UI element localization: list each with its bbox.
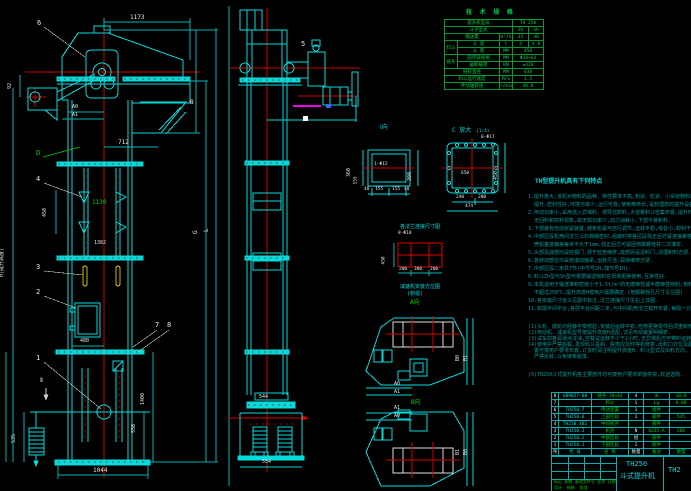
note-line: 8.料斗Zh型与Sh型可根据输送物料在现场更换使用,互换性好. [528,273,691,280]
bom-row: 4TH250.4B1中间机壳部件 [552,421,691,428]
bom-cell-code: GB9027-88 [559,393,592,400]
reducer [308,52,325,86]
dim-boot-554: 554 [262,460,271,465]
dim-450: 450 [43,208,48,217]
spec-cell: m³/h [500,34,513,41]
spec-cell: 传动轴转速 [445,83,500,90]
note-line: 2.传动功率小,采用流入式喂料、诱导式卸料,大容量料斗密集布置,提升时几乎 [528,209,691,216]
bom-cell-qty: 1 [629,414,644,421]
note-line: 严禁反转,以免链条脱落. [528,353,691,360]
detail-c-label: C 放大 [452,128,471,134]
bom-row: 2TH250.2中部区段组部件 [552,435,691,442]
note-line: 1.提升量大,该机对物料的品种、特性要求不高,粉状、粒状、小块状物料均可 [528,193,691,200]
bom-cell-wt: 206 [670,428,691,435]
bom-cell-qty: 1 [629,407,644,414]
dim-1382: 1382 [94,241,106,246]
bom-cell-name: 中间机壳 [592,421,629,428]
flange-i-300: 300 [408,172,413,181]
note-line: 10.各安装尺寸含义见图中标注,法兰连接尺寸见右上详图. [528,297,691,304]
plan2-b1: B1 [456,449,461,455]
reducer-plan [410,359,427,376]
bom-table: 8GB9027-88链条 18×644米10.8 7料斗1Lg0.08 6TH2… [551,392,691,456]
spec-table: 提升机型号TH 250 斗子型式ZhSh 输送量m³/h3548 料斗斗 容l3… [444,19,544,90]
motor-plan [374,428,382,440]
part-label-8: 8 [167,322,171,329]
bom-row: 5TH250.6上部区段1部件535 [552,414,691,421]
flange-i-b1: 40 [364,188,369,193]
note-line: 7.中部区段二米共7节(中节号2H,端节号1H). [528,265,691,272]
flange-i-b2: 155 [375,188,383,193]
spec-cell: 提升机型号 [445,20,513,27]
bom-cell-qty: 4 [629,393,644,400]
tension-bracket [28,88,57,110]
dim-g: G [193,230,199,234]
spec-cell: 链轮直径 [445,69,500,76]
spec-cell: 链条 [445,55,458,69]
head-body-plan [393,322,453,347]
spec-cell: 料斗 [445,41,458,55]
plan2-a0: A0 [394,414,400,419]
drive-flange [352,72,358,106]
spec-cell: ≥320 [513,62,544,69]
front-view-structure [28,26,190,466]
bom-cell-note: Lg [644,400,670,407]
spec-cell: 3 [513,41,529,48]
bom-header-code: 代 号 [559,449,592,456]
side-view-accents [293,104,331,121]
title-block: 标记 处数 更改文件号 签字 日期 设计 校核 批准 TH250 斗式提升机 T… [551,456,691,491]
base-plate [55,460,150,465]
bom-row: 8GB9027-88链条 18×644米10.8 [552,393,691,400]
spec-cell: 斗子型式 [445,27,513,34]
motor-plan [374,350,382,362]
bom-cell-wt [670,442,691,449]
bom-cell-wt [670,435,691,442]
bom-cell-code: TH250.1 [559,442,592,449]
part-label-1: 1 [36,355,40,362]
bom-cell-name: 中部区段 [592,435,629,442]
caption-reducer-position: 减速机安装方位图 [400,285,440,290]
note-line: 壳铅垂度偏差每米不大于1mm,找正后方可紧固地脚螺栓并二次灌浆. [528,241,691,248]
bom-cell-no: 4 [552,421,559,428]
section-ii-label: Ⅱ [40,378,43,384]
bom-cell-no: 6 [552,407,559,414]
bom-cell-code: TH250.7 [559,407,592,414]
dim-head-width: 1173 [130,15,144,21]
bom-header-note: 备注 [644,449,670,456]
bom-cell-code: TH250.2 [559,435,592,442]
head-pulley-housing [86,50,118,98]
bom-cell-name: 传动装置 [592,407,629,414]
bom-header-row: 序代 号名 称数量备注重量 [552,449,691,456]
spec-cell: 圆环链规格 [458,55,500,62]
bom-cell-note: Q235-A [644,428,670,435]
part-label-5: 5 [301,41,305,48]
bom-cell-wt: 10.8 [670,393,691,400]
flange-i-b3: 155 [392,188,400,193]
spec-cell: 35 [513,34,529,41]
spec-cell: MM [500,69,513,76]
detail-d-label: D [36,150,40,157]
titleblock-name: 斗式提升机 [620,473,655,480]
flange-c-450: 450 [494,171,499,180]
bom-cell-no: 1 [552,442,559,449]
dim-535: 535 [12,434,17,443]
view-i-label: Ⅰ向 [380,125,388,131]
side-view-structure [238,10,358,467]
dim-550: 550 [132,424,137,433]
spec-cell: 1.5 [513,76,544,83]
bom-cell-qty: 组 [629,435,644,442]
bom-header-name: 名 称 [592,449,629,456]
spec-cell: M/S [500,76,513,83]
head-vent [94,26,110,33]
head-vent-side [240,10,262,30]
part-label-3: 3 [36,264,40,271]
dim-a0: A0 [72,105,78,110]
spec-cell: 斗 距 [458,48,500,55]
bom-header-no: 序 [552,449,559,456]
cad-drawing-sheet: 1173 712 480 1044 A0 A1 92 450 1130 1382… [0,0,691,491]
bom-cell-name: 机壳 [592,428,629,435]
part-label-6: 6 [37,20,41,27]
front-view-bolt-marks [58,79,188,462]
detail-red-centerlines [362,138,503,198]
spec-row: 料斗运行速度M/S1.5 [445,76,544,83]
spec-row: 链轮直径MM630 [445,69,544,76]
bom-cell-note: 米 [644,393,670,400]
dim-h-label: H(提升高度) [0,248,5,277]
dim-a1: A1 [72,113,78,118]
flange-i-360: 360 [347,168,352,177]
dim-inlet-544: 544 [259,395,268,400]
grid-bolts-label: 8-Φ18 [398,232,412,237]
bom-cell-note: 部件 [644,442,670,449]
bom-cell-no: 3 [552,428,559,435]
flange-i-155: 155 [355,176,360,184]
bom-cell-qty: 1 [629,400,644,407]
bom-cell-no: 8 [552,393,559,400]
view-b-label: B向 [411,400,421,406]
plan-b1: B1 [464,355,469,361]
blue-marker [326,104,331,108]
titleblock-model: TH250 [626,461,647,468]
spec-row: 料斗斗 容l34.8 [445,41,544,48]
head-hood [62,33,183,77]
spec-table-title: 技 术 规 格 [466,10,515,16]
plan2-b0: B0 [464,449,469,455]
bom-row: 7料斗1Lg0.08 [552,400,691,407]
bom-cell-qty [629,421,644,428]
flange-c-474: 474 [465,205,473,210]
note-line: 不超过250℃,提升高度H按用户需要确定.(地脚螺栓孔尺寸见左图) [528,289,691,296]
bom-cell-wt: 0.08 [670,400,691,407]
caption-plan-note: (俯视) [407,292,423,297]
spec-cell: 料斗运行速度 [445,76,500,83]
note-line: 6.各转动部位均采用滚动轴承,运转灵活,润滑维修方便. [528,257,691,264]
signature-row-labels: 设计 校核 批准 [554,486,588,490]
note-line: 4.中部区段机壳间法兰以石棉绳密封,组装时将各区段找正后拧紧连接螺栓,机 [528,233,691,240]
spec-cell: r/min [500,83,513,90]
spec-cell: Sh [529,27,544,34]
plan-b0: B0 [456,355,461,361]
flange-c-bolts: 8-Φ17 [481,136,495,141]
grid-200b: 200 [430,268,438,273]
spec-cell: 630 [513,69,544,76]
bom-cell-name: 上部区段 [592,414,629,421]
bom-row: 3TH250.3机壳NQ235-A206 [552,428,691,435]
spec-row: 传动轴转速r/min48.0 [445,83,544,90]
plan-a1: A1 [394,390,400,395]
flange-c-240: 240 [456,196,464,201]
white-marker [303,116,308,121]
detail-c-scale: (1:4) [476,130,490,135]
note-line: 5.头部及底部均设检视门,便于检查维修,底部另设清料门,清理积料方便. [528,249,691,256]
revision-row-labels: 标记 处数 更改文件号 签字 日期 [554,480,616,484]
spec-cell: 4.8 [529,41,544,48]
spec-cell: 破断载荷 [458,62,500,69]
spec-row: 斗子型式ZhSh [445,27,544,34]
spec-cell: Φ18×64 [513,55,544,62]
bom-cell-no: 5 [552,414,559,421]
spec-cell: 斗 容 [458,41,500,48]
bom-cell-note: 组件 [644,407,670,414]
spec-cell: MM [500,55,513,62]
bom-header-wt: 重量 [670,449,691,456]
note-line: 11.如需中间平台,各层平台间距二米,与中间机壳法兰错开布置,每隔一只. [528,305,691,312]
bom-cell-name: 料斗 [592,400,629,407]
bom-cell-qty: N [629,428,644,435]
dim-b: B [190,100,194,106]
front-view-centerlines [25,26,200,478]
grid-200a: 200 [399,268,407,273]
view-a-label: A向 [410,300,420,306]
anchor-bolt-grid [398,243,442,267]
dim-chute: 712 [118,140,129,146]
part-label-7: 7 [155,322,159,329]
side-view-bolt-marks [242,80,298,424]
inspection-door [75,303,100,337]
dim-l: L [204,228,210,232]
spec-cell: TH 250 [513,20,544,27]
bom-cell-code: TH250.6 [559,414,592,421]
spec-cell: KN [500,62,513,69]
reducer-plan [410,414,427,431]
plan-a0: A0 [394,382,400,387]
bom-cell-code: TH250.4B1 [559,421,592,428]
bom-cell-qty: 1 [629,442,644,449]
bom-cell-wt [670,421,691,428]
bom-cell-note: 部件 [644,414,670,421]
dim-480: 480 [80,339,89,344]
discharge-chute [132,102,186,133]
plan-view-centerlines [386,316,460,478]
grid-300: 300 [414,268,422,273]
part-label-4: 4 [36,176,40,183]
head-body-plan [393,448,453,473]
spec-cell: Zh [513,27,529,34]
note-line: (5)TH250斗式提升机各主要部件均可按用户要求单独供货,欢迎选购. [528,371,691,378]
note-line: 3.下部装有自动张紧装置,链条松紧可自行调节,运转平稳,噪音小,卸料干净. [528,225,691,232]
flange-i-mark: 1-Φ12 [374,163,388,168]
bom-cell-name: 链条 18×64 [592,393,629,400]
bom-cell-note: 部件 [644,421,670,428]
bom-cell-code [559,400,592,407]
spec-row: 破断载荷KN≥320 [445,62,544,69]
bom-cell-no: 2 [552,435,559,442]
caption-flange-sizes: 各法兰连接尺寸图 [400,225,440,230]
dim-1130: 1130 [92,200,106,206]
spec-row: 提升机型号TH 250 [445,20,544,27]
titleblock-drawing-no: TH2 [668,467,681,474]
bom-row: 1TH250.1下部区段1部件 [552,442,691,449]
spec-row: 输送量m³/h3548 [445,34,544,41]
flange-i-b4: 40 [404,188,409,193]
grid-450: 450 [383,256,388,264]
yellow-chain-parts [83,266,120,286]
spec-cell: 48.0 [513,83,544,90]
plan2-a1: A1 [394,406,400,411]
flange-c-200: 200 [478,196,486,201]
note-line: 9.本机适用于输送堆积密度小于1.5t/m³的无磨琢性或半磨琢性物料,物料温度 [528,281,691,288]
bom-cell-code: TH250.3 [559,428,592,435]
part-label-2: 2 [36,289,40,296]
spec-row: 链条圆环链规格MMΦ18×64 [445,55,544,62]
bom-row: 6TH250.7传动装置1组件 [552,407,691,414]
spec-row: 斗 距MM450 [445,48,544,55]
notes-title: TH型提升机具有下列特点 [535,179,602,185]
note-line: 无回料和挖料现象,故无效功率少,动力消耗小,下部不易积料. [528,217,691,224]
bom-header-qty: 数量 [629,449,644,456]
bom-cell-no: 7 [552,400,559,407]
bom-cell-note: 部件 [644,435,670,442]
spec-cell: l [500,41,513,48]
spec-cell: 450 [513,48,544,55]
flange-c-650: 650 [461,172,469,177]
bom-cell-wt [670,407,691,414]
note-line: 提升,密封性好,环境污染少,运行可靠,使用寿命长,是较理想的提升设备. [528,201,691,208]
spec-cell: MM [500,48,513,55]
dim-92: 92 [8,83,13,89]
bom-cell-wt: 535 [670,414,691,421]
dim-1400: 1400 [141,393,146,405]
detail-d-leader [43,147,80,157]
dim-base-width: 1044 [93,468,107,474]
spec-cell: 48 [529,34,544,41]
spec-cell: 输送量 [445,34,500,41]
bom-cell-name: 下部区段 [592,442,629,449]
